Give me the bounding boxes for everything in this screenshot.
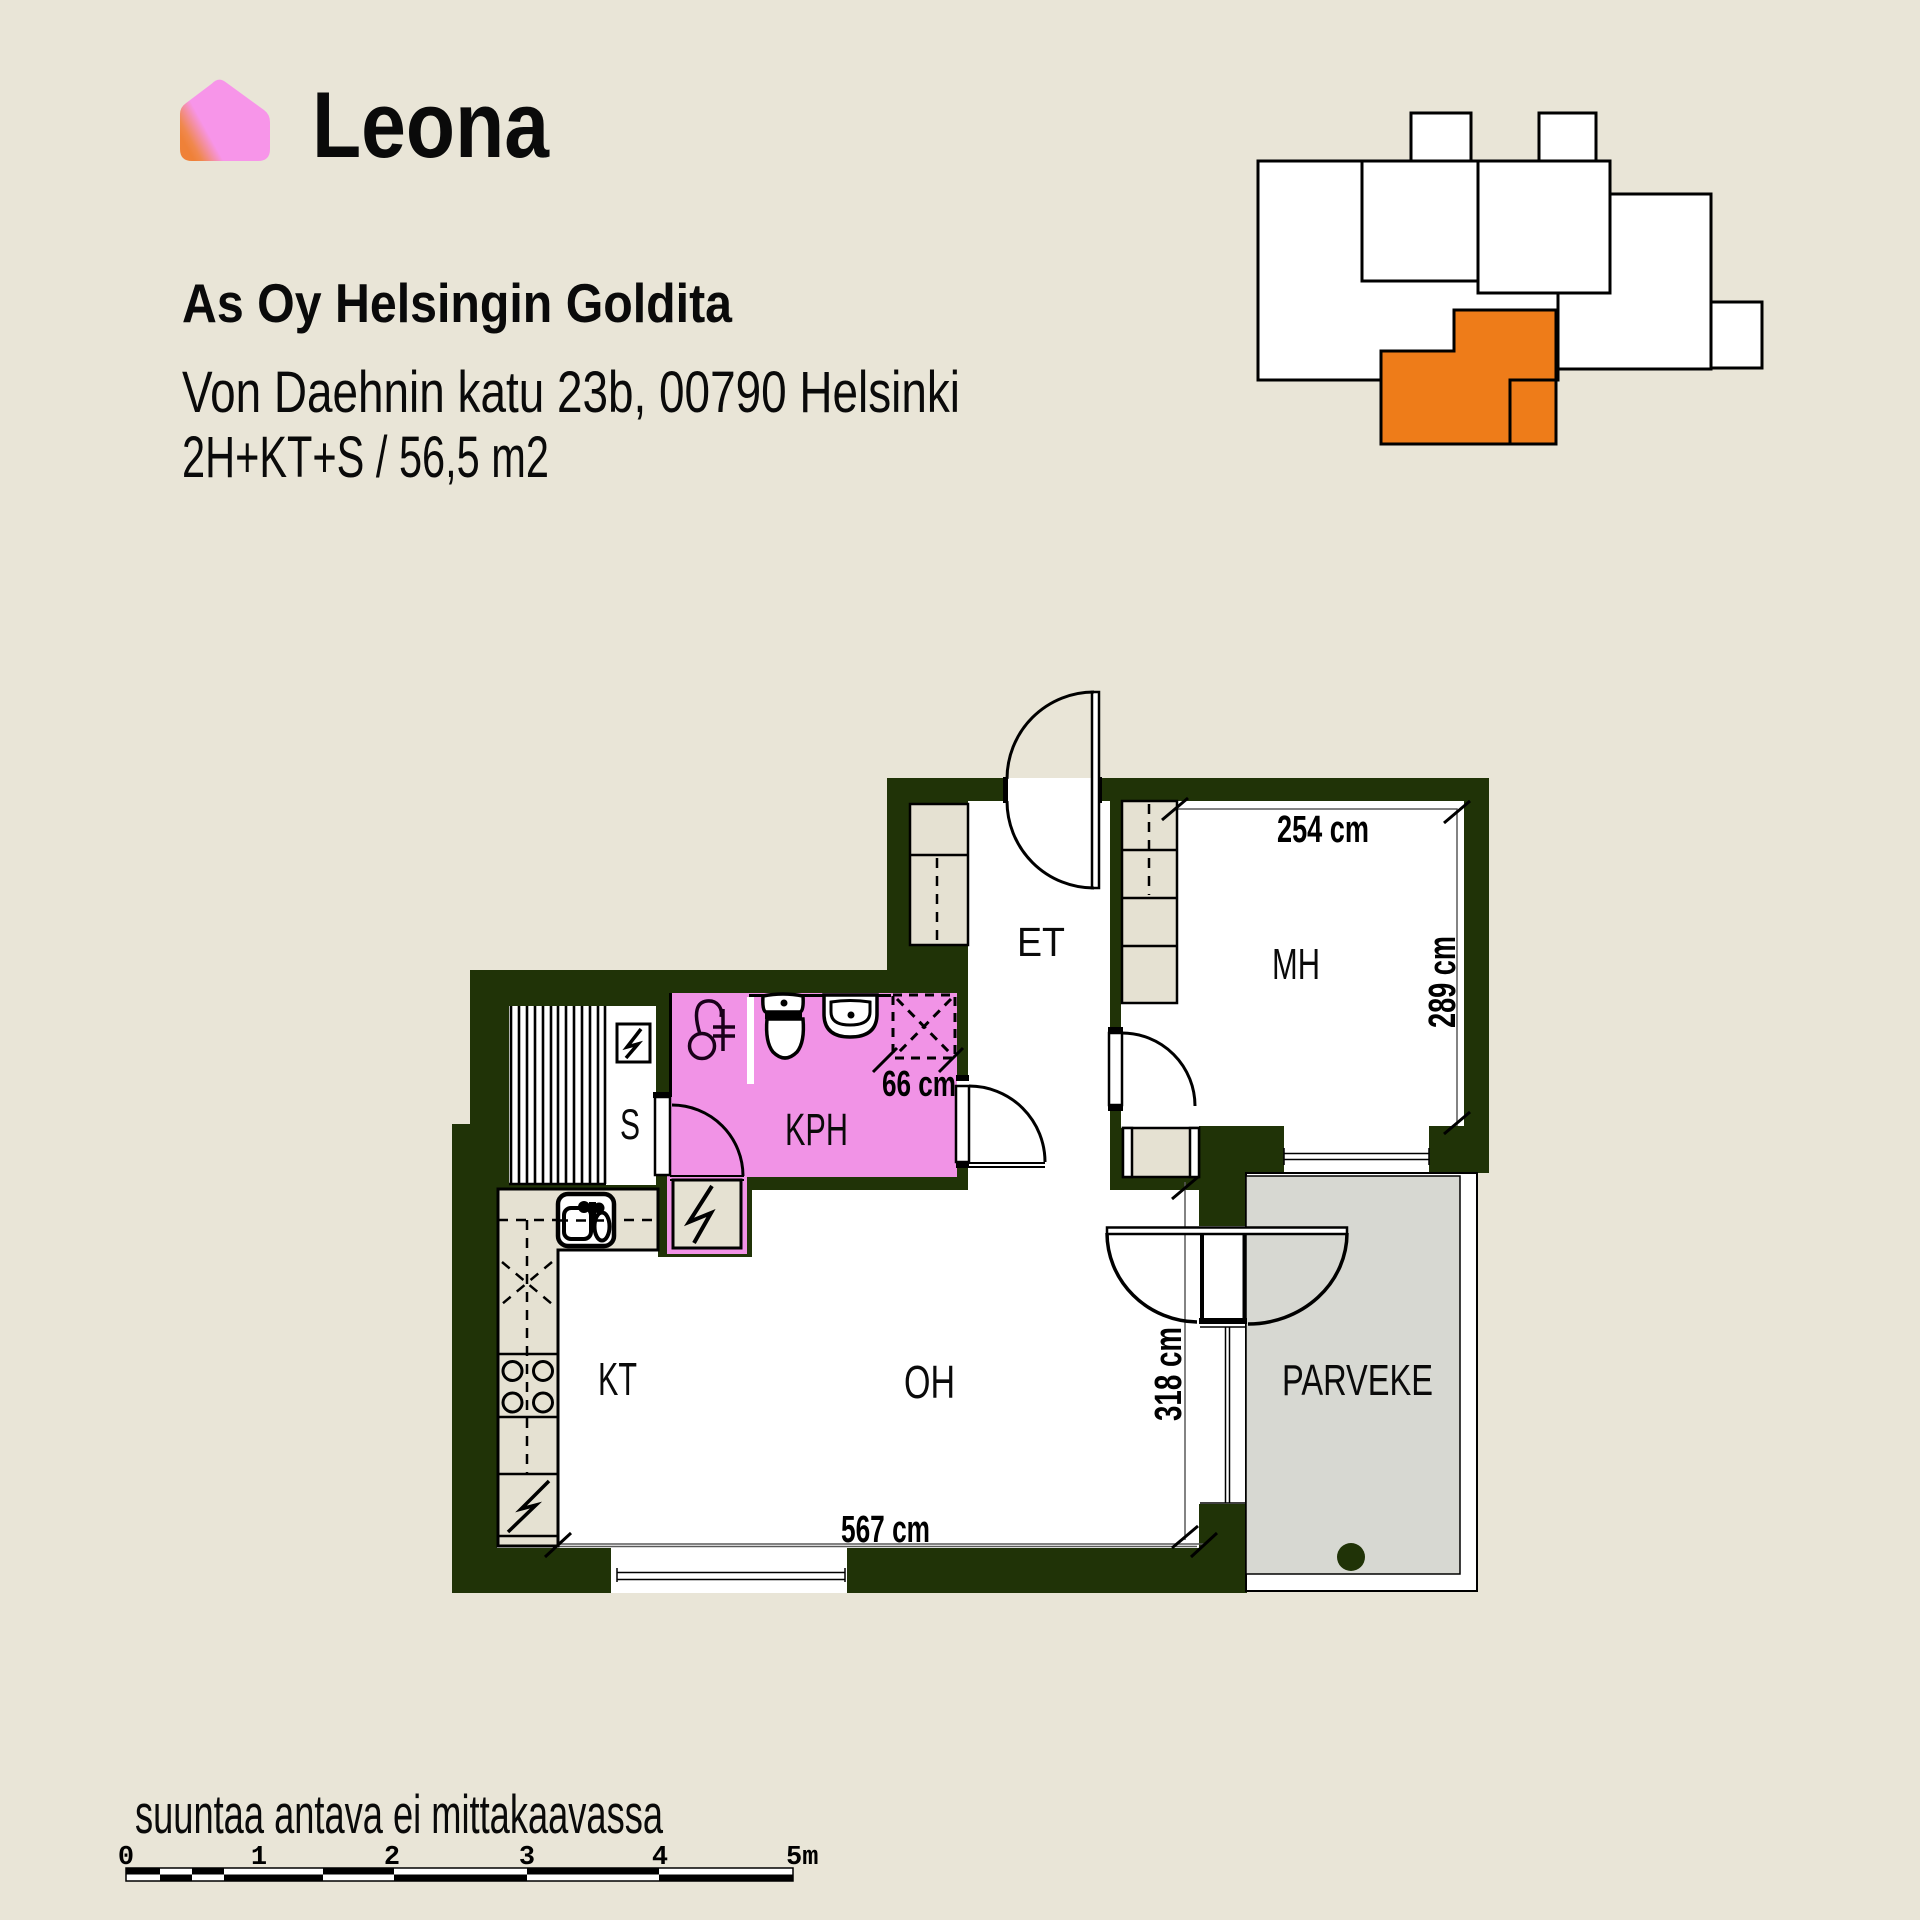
svg-text:254 cm: 254 cm	[1277, 809, 1369, 851]
svg-text:suuntaa antava ei mittakaavass: suuntaa antava ei mittakaavassa	[135, 1783, 663, 1845]
svg-text:4: 4	[652, 1843, 668, 1873]
svg-text:567 cm: 567 cm	[841, 1509, 930, 1551]
svg-text:2: 2	[384, 1843, 400, 1873]
svg-text:OH: OH	[904, 1356, 955, 1408]
svg-text:S: S	[620, 1101, 640, 1149]
svg-text:289 cm: 289 cm	[1422, 936, 1464, 1028]
svg-text:PARVEKE: PARVEKE	[1282, 1356, 1433, 1405]
svg-text:Von Daehnin katu 23b, 00790 He: Von Daehnin katu 23b, 00790 Helsinki	[182, 360, 960, 425]
svg-text:KPH: KPH	[785, 1104, 848, 1155]
svg-text:5m: 5m	[786, 1843, 818, 1873]
svg-text:1: 1	[251, 1843, 267, 1873]
svg-text:318 cm: 318 cm	[1148, 1327, 1190, 1421]
svg-text:As Oy Helsingin Goldita: As Oy Helsingin Goldita	[182, 272, 732, 334]
svg-text:KT: KT	[598, 1353, 637, 1405]
svg-text:ET: ET	[1017, 919, 1065, 965]
svg-text:2H+KT+S / 56,5 m2: 2H+KT+S / 56,5 m2	[182, 425, 549, 490]
svg-text:0: 0	[118, 1843, 134, 1873]
svg-text:MH: MH	[1272, 940, 1320, 989]
svg-text:66 cm: 66 cm	[882, 1063, 956, 1104]
svg-text:Leona: Leona	[312, 72, 550, 177]
svg-text:3: 3	[519, 1843, 535, 1873]
